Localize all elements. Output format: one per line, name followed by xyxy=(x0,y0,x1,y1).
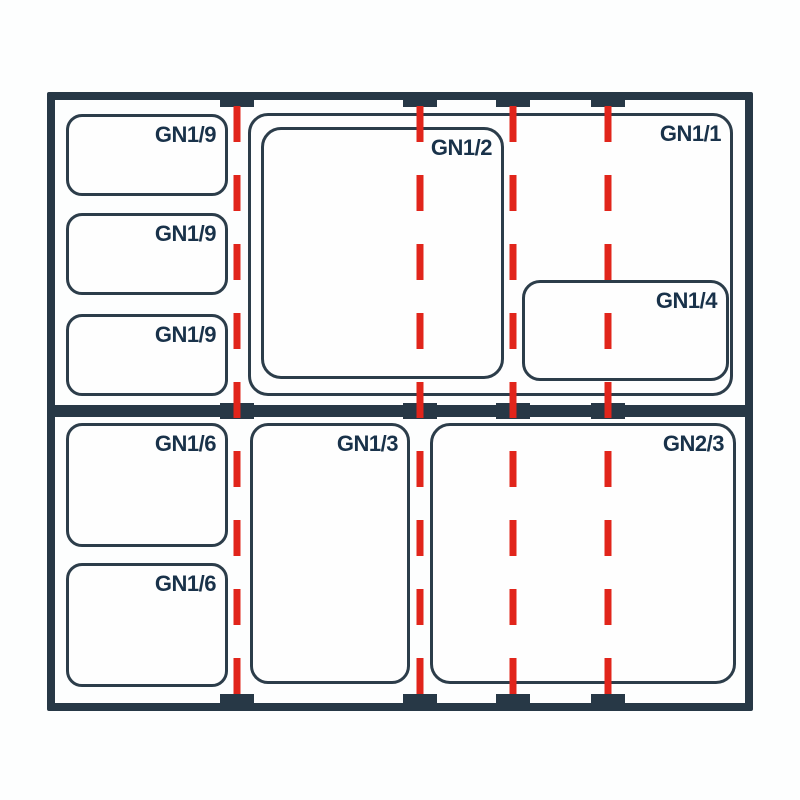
pan-gn-1-6-first: GN1/6 xyxy=(66,423,228,547)
rail-tick-top-2 xyxy=(403,96,437,107)
rail-tick-top-1 xyxy=(220,96,254,107)
rail-tick-bottom-3 xyxy=(496,694,530,704)
rail-tick-mid-4 xyxy=(591,403,625,419)
pan-label: GN1/9 xyxy=(155,122,216,148)
rail-tick-mid-2 xyxy=(403,403,437,419)
pan-label: GN1/1 xyxy=(660,121,721,147)
pan-gn-1-3: GN1/3 xyxy=(250,423,410,684)
pan-gn-1-9-third: GN1/9 xyxy=(66,314,228,396)
rail-tick-top-4 xyxy=(591,96,625,107)
pan-label: GN1/6 xyxy=(155,431,216,457)
rail-tick-bottom-1 xyxy=(220,694,254,704)
rail-tick-mid-1 xyxy=(220,403,254,419)
gn-pan-diagram: GN1/1 GN1/2 GN1/4 GN1/9 GN1/9 GN1/9 GN1/… xyxy=(0,0,800,800)
pan-gn-1-2: GN1/2 xyxy=(261,127,504,379)
pan-gn-2-3: GN2/3 xyxy=(430,423,736,684)
pan-label: GN1/4 xyxy=(656,288,717,314)
pan-label: GN1/2 xyxy=(431,135,492,161)
pan-label: GN1/6 xyxy=(155,571,216,597)
pan-label: GN1/9 xyxy=(155,221,216,247)
pan-label: GN1/3 xyxy=(337,431,398,457)
rail-tick-bottom-2 xyxy=(403,694,437,704)
rail-tick-bottom-4 xyxy=(591,694,625,704)
pan-gn-1-9-first: GN1/9 xyxy=(66,114,228,196)
rail-tick-mid-3 xyxy=(496,403,530,419)
pan-gn-1-4: GN1/4 xyxy=(522,280,729,381)
pan-label: GN2/3 xyxy=(663,431,724,457)
pan-gn-1-9-second: GN1/9 xyxy=(66,213,228,295)
rail-tick-top-3 xyxy=(496,96,530,107)
pan-label: GN1/9 xyxy=(155,322,216,348)
section-divider xyxy=(47,405,753,417)
pan-gn-1-6-second: GN1/6 xyxy=(66,563,228,687)
